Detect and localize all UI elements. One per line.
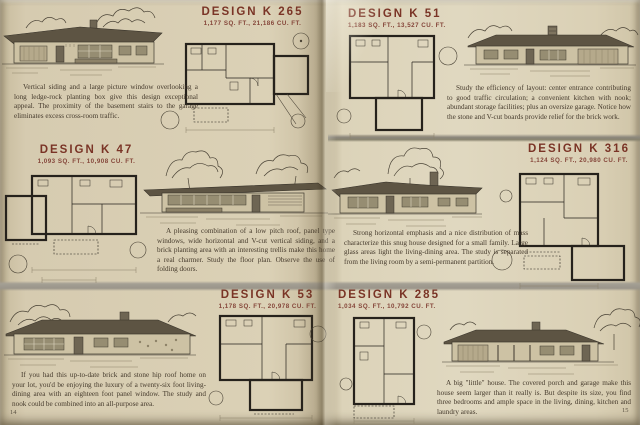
catalog-spread: DESIGN K 265 1,177 SQ. FT., 21,186 CU. F… (0, 0, 640, 425)
house-illustration-k316 (326, 144, 488, 232)
design-title-text: DESIGN K 285 (338, 289, 473, 301)
house-illustration-k51 (460, 12, 640, 84)
page-number-right: 15 (622, 407, 629, 414)
design-title-k51: DESIGN K 51 1,183 SQ. FT., 13,527 CU. FT… (348, 8, 468, 29)
floor-plan-k51 (334, 28, 462, 140)
description-k53: If you had this up-to-date brick and sto… (12, 371, 206, 409)
design-title-text: DESIGN K 53 (200, 289, 335, 301)
house-illustration-k53 (0, 296, 202, 376)
design-title-text: DESIGN K 316 (520, 143, 638, 155)
page-number-left: 14 (10, 409, 17, 416)
design-title-k53: DESIGN K 53 1,178 SQ. FT., 20,978 CU. FT… (200, 289, 335, 310)
floor-plan-k53 (206, 308, 332, 423)
description-k265: Vertical siding and a large picture wind… (14, 83, 198, 121)
design-title-text: DESIGN K 51 (348, 8, 468, 20)
design-title-k265: DESIGN K 265 1,177 SQ. FT., 21,186 CU. F… (185, 6, 320, 27)
house-illustration-k285 (436, 304, 640, 384)
floor-plan-k47 (2, 164, 150, 290)
design-specs: 1,177 SQ. FT., 21,186 CU. FT. (185, 20, 320, 27)
house-illustration-k47 (136, 146, 336, 230)
house-illustration-k265 (0, 0, 168, 82)
description-k51: Study the efficiency of layout: center e… (447, 84, 631, 122)
design-title-k316: DESIGN K 316 1,124 SQ. FT., 20,980 CU. F… (520, 143, 638, 164)
design-specs: 1,124 SQ. FT., 20,980 CU. FT. (520, 157, 638, 164)
floor-plan-k285 (336, 312, 434, 424)
description-k47: A pleasing combination of a low pitch ro… (157, 227, 335, 275)
description-k285: A big "little" house. The covered porch … (437, 379, 631, 417)
description-k316: Strong horizontal emphasis and a nice di… (344, 229, 528, 267)
design-title-text: DESIGN K 265 (185, 6, 320, 18)
